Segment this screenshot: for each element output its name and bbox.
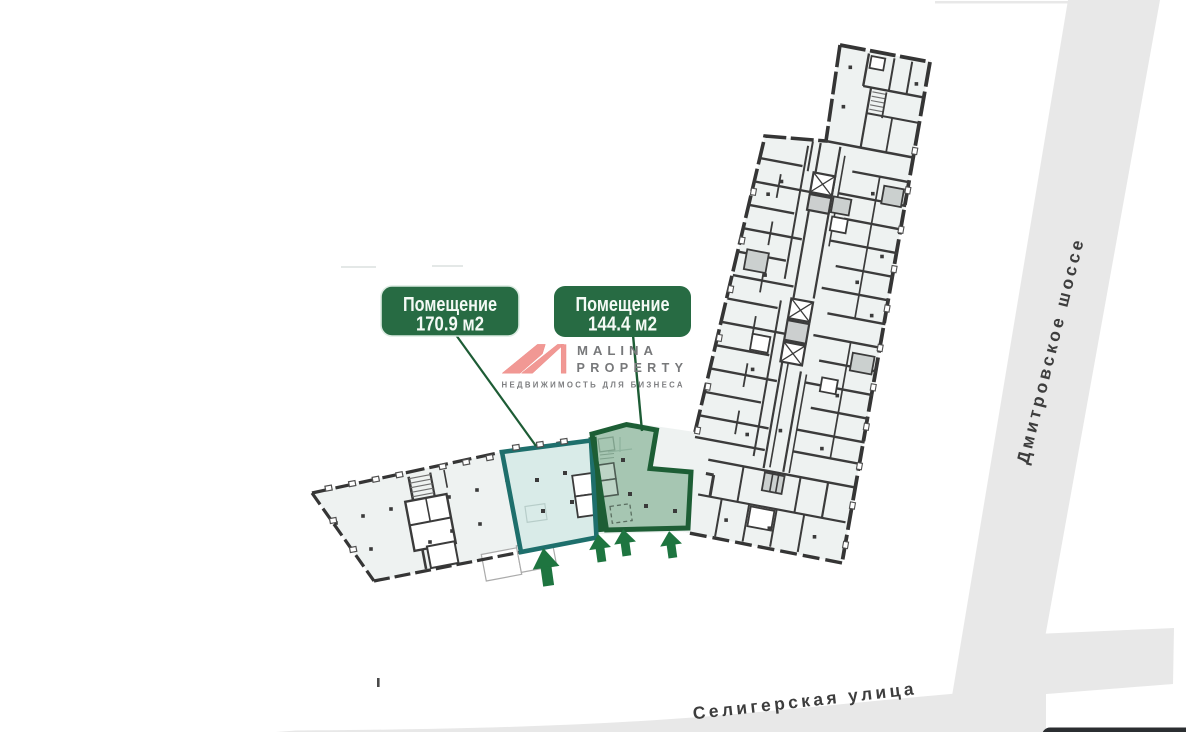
- svg-text:170.9 м2: 170.9 м2: [416, 314, 484, 336]
- svg-text:144.4 м2: 144.4 м2: [588, 314, 657, 336]
- svg-text:НЕДВИЖИМОСТЬ ДЛЯ БИЗНЕСА: НЕДВИЖИМОСТЬ ДЛЯ БИЗНЕСА: [502, 380, 683, 389]
